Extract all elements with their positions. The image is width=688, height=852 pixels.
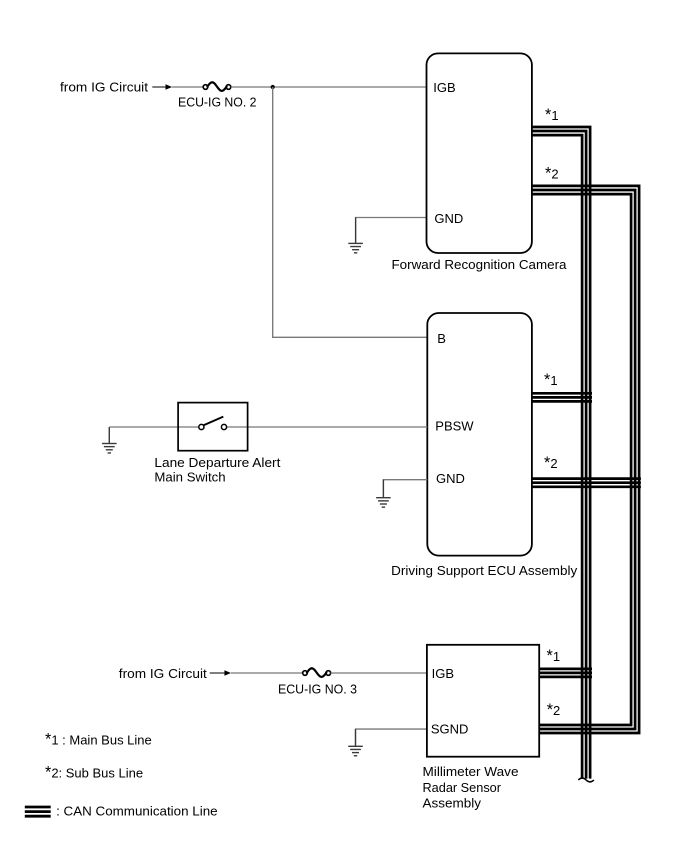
svg-text:GND: GND	[436, 471, 465, 486]
svg-text:ECU-IG NO. 3: ECU-IG NO. 3	[278, 682, 357, 697]
svg-text:*2: *2	[544, 454, 558, 472]
svg-text:Forward Recognition Camera: Forward Recognition Camera	[392, 257, 568, 272]
svg-text:from IG Circuit: from IG Circuit	[60, 80, 148, 95]
svg-text:*2: Sub Bus Line: *2: Sub Bus Line	[45, 764, 143, 782]
svg-text:*1: *1	[547, 647, 561, 665]
svg-text:*2: *2	[547, 701, 561, 719]
svg-text:: CAN Communication Line: : CAN Communication Line	[56, 804, 217, 819]
svg-text:*2: *2	[545, 165, 559, 183]
svg-text:Assembly: Assembly	[423, 796, 482, 811]
svg-text:SGND: SGND	[431, 722, 469, 737]
svg-text:from IG Circuit: from IG Circuit	[119, 666, 207, 681]
svg-text:Main Switch: Main Switch	[154, 470, 225, 485]
svg-text:ECU-IG NO. 2: ECU-IG NO. 2	[178, 95, 257, 110]
svg-text:B: B	[437, 331, 446, 346]
svg-text:GND: GND	[434, 211, 463, 226]
svg-text:IGB: IGB	[432, 666, 454, 681]
svg-text:Millimeter Wave: Millimeter Wave	[423, 764, 519, 779]
svg-text:*1 : Main Bus Line: *1 : Main Bus Line	[45, 731, 152, 749]
svg-text:PBSW: PBSW	[435, 419, 474, 434]
svg-text:Driving Support ECU Assembly: Driving Support ECU Assembly	[391, 563, 578, 578]
svg-text:IGB: IGB	[433, 80, 455, 95]
svg-text:Lane Departure Alert: Lane Departure Alert	[154, 455, 280, 470]
svg-text:Radar Sensor: Radar Sensor	[423, 780, 502, 795]
svg-text:*1: *1	[545, 106, 559, 124]
svg-text:*1: *1	[544, 371, 558, 389]
